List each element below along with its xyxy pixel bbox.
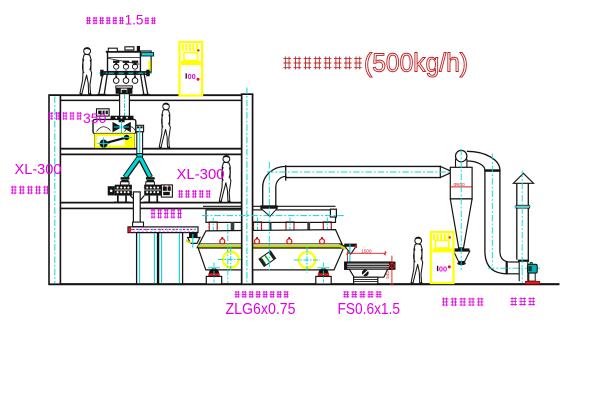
svg-text:(500kg/h): (500kg/h) [364, 50, 468, 78]
svg-text:XL-300: XL-300 [177, 167, 225, 183]
svg-text:ZLG6x0.75: ZLG6x0.75 [226, 301, 296, 318]
svg-text:FS0.6x1.5: FS0.6x1.5 [338, 301, 401, 318]
svg-text:350: 350 [83, 110, 107, 126]
svg-text:540: 540 [385, 270, 390, 278]
svg-text:XL-300: XL-300 [15, 162, 62, 178]
svg-text:Φ800: Φ800 [453, 182, 465, 187]
svg-text:1.5: 1.5 [125, 13, 144, 28]
svg-text:00: 00 [439, 264, 447, 273]
svg-text:00: 00 [188, 72, 196, 81]
svg-text:1500: 1500 [361, 248, 372, 253]
